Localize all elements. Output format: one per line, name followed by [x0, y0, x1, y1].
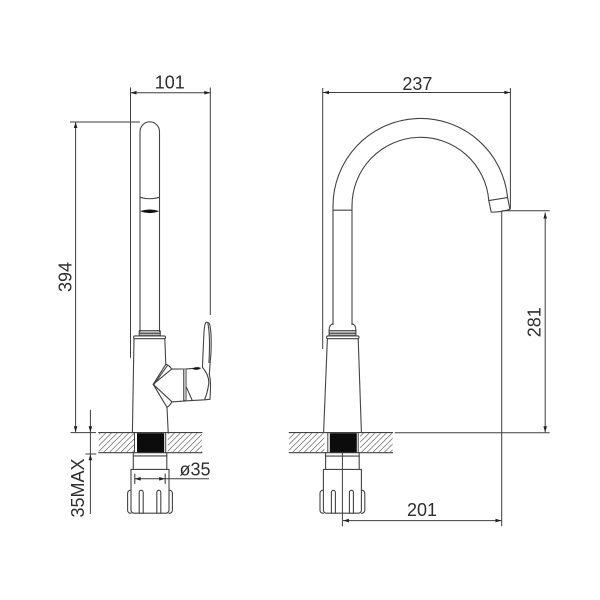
- svg-text:201: 201: [407, 500, 437, 520]
- svg-text:281: 281: [524, 307, 544, 337]
- svg-text:101: 101: [155, 72, 185, 92]
- svg-text:237: 237: [402, 74, 432, 94]
- svg-text:394: 394: [55, 262, 75, 292]
- svg-text:ø35: ø35: [179, 460, 210, 480]
- svg-text:35MAX: 35MAX: [68, 458, 88, 517]
